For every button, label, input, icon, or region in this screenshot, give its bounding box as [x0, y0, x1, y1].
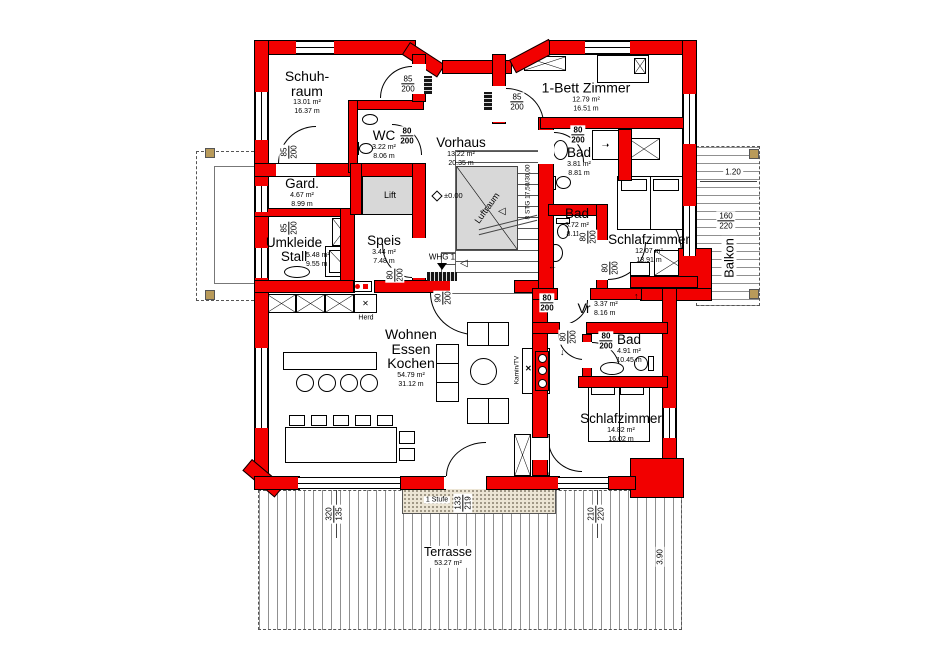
- shower: ➝: [592, 130, 619, 160]
- fireplace-x-mark: ✕: [525, 364, 532, 373]
- fireplace-box: [535, 351, 549, 391]
- door-dim-80-200: 80200: [399, 126, 414, 145]
- loveseat: [467, 398, 509, 424]
- door-opening: [538, 130, 554, 164]
- chair: [355, 415, 371, 426]
- entry-arrow: ↑: [634, 292, 639, 301]
- door-dim-80-200: 80200: [558, 329, 577, 344]
- door-tag-badge: [427, 272, 457, 281]
- chair: [399, 448, 415, 461]
- kitchen-cabinet: [267, 294, 296, 313]
- toilet: [648, 356, 654, 371]
- wall-segment: [254, 476, 300, 490]
- door-tag-badge: [484, 92, 492, 110]
- wardrobe: [628, 138, 660, 160]
- canopy-post: [205, 148, 215, 158]
- stove: ✕: [354, 294, 377, 313]
- bed-pillow: [634, 58, 646, 74]
- floor-plan: Luftraum 8 STG 17,50/30,00 ◁ ◁ Lift: [0, 0, 933, 660]
- lift-label: Lift: [384, 190, 396, 200]
- terrace-window: [298, 477, 400, 489]
- door-opening: [558, 289, 590, 300]
- wall-segment: [532, 322, 560, 334]
- bar-stool: [340, 374, 358, 392]
- door-swing: [446, 442, 486, 476]
- step-dim-133-219: 133219: [453, 493, 472, 512]
- stove-label: Herd: [358, 315, 373, 322]
- window: [663, 408, 676, 438]
- door-dim-80-200: 80200: [598, 331, 613, 350]
- door-dim-210-220: 210220: [586, 504, 605, 523]
- wall-segment: [630, 276, 698, 288]
- door-dim-80-200: 80200: [600, 260, 619, 275]
- balcony-post: [749, 149, 759, 159]
- bed-pillow: [653, 179, 679, 191]
- room-label-bad-bottom: Bad 4.91 m² 10.45 m: [616, 333, 641, 365]
- bar-stool: [296, 374, 314, 392]
- wall-segment: [400, 476, 446, 490]
- kamin-tv-label: Kamin/TV: [514, 356, 521, 385]
- door-opening: [492, 86, 506, 122]
- balcony-width-dim: 1.20: [723, 168, 743, 177]
- chair: [377, 415, 393, 426]
- level-label: ±0.00: [444, 191, 463, 200]
- room-label-schlafzimmer1: Schlafzimmer 12.07 m² 13.91 m: [608, 233, 690, 265]
- window: [585, 41, 630, 54]
- room-label-bad-top: Bad 3.81 m² 8.81 m: [567, 146, 591, 178]
- stair-dimension-label: 8 STG 17,50/30,00: [525, 165, 532, 220]
- window: [683, 94, 696, 144]
- wall-segment: [486, 476, 560, 490]
- chair: [289, 415, 305, 426]
- bar-stool: [360, 374, 378, 392]
- room-label-schuhraum: Schuh- raum 13.01 m² 16.37 m: [285, 69, 329, 117]
- chair: [399, 431, 415, 444]
- door-opening: [412, 238, 426, 278]
- kitchen-cabinet: [296, 294, 325, 313]
- entry-marker-icon: [437, 263, 447, 270]
- room-label-gard: Gard. 4.67 m² 8.99 m: [285, 177, 319, 209]
- room-area-vr: 3.37 m² 8.16 m: [594, 300, 618, 318]
- bar-stool: [318, 374, 336, 392]
- door-dim-85-200: 85200: [400, 74, 415, 93]
- canopy-post: [205, 290, 215, 300]
- kitchen-cabinet: [325, 294, 354, 313]
- room-label-wohnen: Wohnen Essen Kochen 54.79 m² 31.12 m: [385, 327, 437, 389]
- room-label-vr: Vr: [578, 302, 591, 316]
- wall-segment: [532, 458, 548, 476]
- toilet-bowl: [359, 143, 373, 154]
- door-dim-85-200: 85200: [509, 92, 524, 111]
- wall-segment: [350, 163, 362, 215]
- wall-segment: [618, 129, 632, 181]
- door-opening: [532, 438, 548, 460]
- wall-segment: [254, 40, 416, 55]
- stair-direction-icon: ◁: [498, 206, 506, 217]
- room-label-schlafzimmer2: Schlafzimmer 14.82 m² 16.02 m: [580, 412, 662, 444]
- door-opening: [450, 281, 514, 293]
- door-opening: [582, 342, 592, 368]
- step-label: 1 Stufe: [424, 497, 450, 504]
- door-dim-90-200: 90200: [433, 290, 452, 305]
- bar-counter: [283, 352, 377, 370]
- door-dim-80-200: 80200: [578, 229, 597, 244]
- room-label-einbett: 1-Bett Zimmer 12.79 m² 16.51 m: [542, 81, 631, 114]
- wall-segment: [578, 376, 668, 388]
- coffee-table: [470, 358, 497, 385]
- sofa: [436, 344, 459, 402]
- chair: [333, 415, 349, 426]
- door-swing: [548, 440, 582, 472]
- door-tag-badge: [424, 76, 432, 94]
- door-opening: [276, 164, 316, 176]
- wall-segment: [254, 280, 354, 293]
- duct-dot: [363, 284, 368, 289]
- duct-dot: [355, 284, 360, 289]
- wall-segment: [254, 208, 352, 217]
- room-label-vorhaus: Vorhaus 13.22 m² 20.35 m: [436, 136, 486, 168]
- cabinet: [514, 434, 531, 476]
- wall-segment: [630, 458, 684, 498]
- chair: [311, 415, 327, 426]
- door-dim-85-200: 85200: [279, 220, 298, 235]
- washbasin: [362, 114, 378, 125]
- door-dim-80-200: 80200: [385, 267, 404, 282]
- room-label-balkon: Balkon: [722, 236, 737, 280]
- window: [255, 92, 268, 140]
- terrace-depth-dim: 3.90: [656, 547, 665, 567]
- window-dim-160-220: 160220: [716, 211, 735, 230]
- balcony-post: [749, 289, 759, 299]
- door-opening: [444, 477, 486, 489]
- window: [255, 348, 268, 428]
- room-label-terrasse: Terrasse 53.27 m²: [422, 546, 474, 568]
- door-dim-80-200: 80200: [570, 125, 585, 144]
- apartment-entry-label: WHG 1: [429, 253, 455, 262]
- window: [296, 41, 334, 54]
- room-label-wc: WC 3.22 m² 8.06 m: [372, 129, 396, 161]
- dining-table: [285, 427, 397, 463]
- wall-segment: [540, 117, 685, 129]
- door-dim-85-200: 85200: [279, 144, 298, 159]
- washbasin: [553, 140, 568, 160]
- shower-arrow: ←: [548, 262, 557, 271]
- window-dim-320-135: 320135: [324, 504, 343, 523]
- room-label-speis: Speis 3.44 m² 7.48 m: [367, 234, 401, 266]
- terrace-door: [558, 477, 608, 489]
- door-dim-80-200: 80200: [539, 293, 554, 312]
- corridor-arrow: ↓: [560, 348, 565, 357]
- loveseat: [467, 322, 509, 346]
- dim-line: [700, 181, 757, 182]
- wall-segment: [608, 476, 636, 490]
- room-area-umkleide: 5.48 m² 9.55 m: [306, 251, 330, 269]
- window: [255, 186, 268, 212]
- stair-direction-icon: ◁: [460, 258, 468, 269]
- level-marker-icon: [431, 190, 442, 201]
